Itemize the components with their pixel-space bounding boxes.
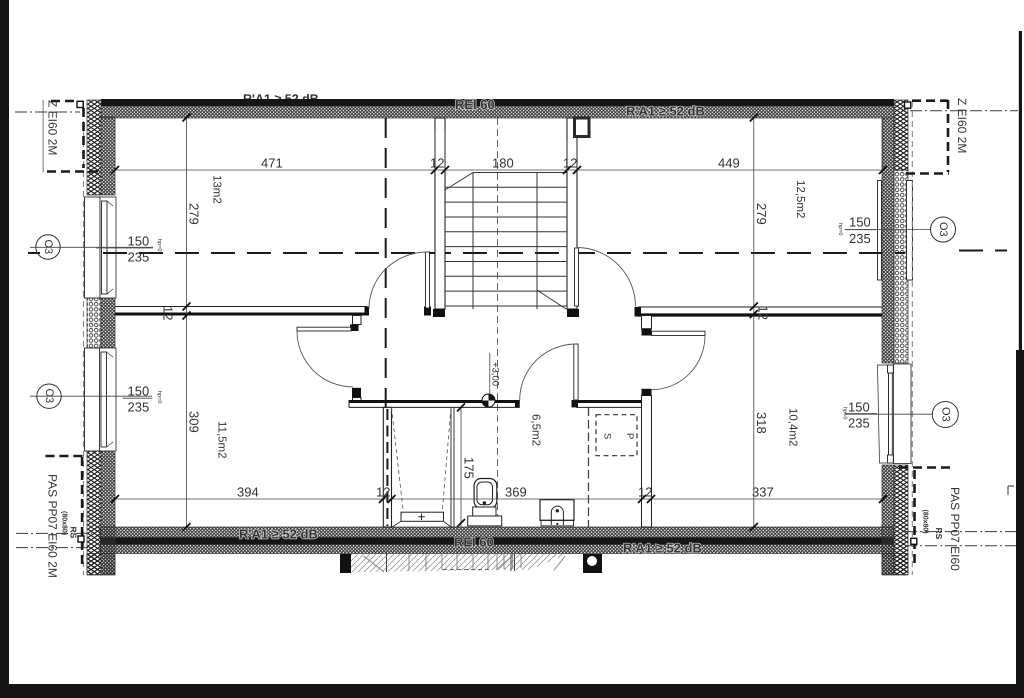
svg-text:P: P (624, 433, 635, 439)
svg-text:12: 12 (756, 306, 771, 320)
svg-text:180: 180 (492, 156, 514, 171)
svg-text:hp=0: hp=0 (156, 239, 162, 251)
svg-text:279: 279 (754, 203, 769, 225)
svg-text:hp=0: hp=0 (156, 391, 162, 403)
svg-text:O3: O3 (939, 407, 951, 422)
svg-text:235: 235 (128, 400, 150, 415)
svg-text:hp=0: hp=0 (842, 407, 848, 419)
svg-text:279: 279 (187, 203, 202, 225)
svg-text:RS: RS (934, 528, 944, 540)
svg-text:235: 235 (848, 416, 870, 431)
svg-text:Z EI60 2M: Z EI60 2M (955, 98, 969, 153)
svg-text:471: 471 (261, 156, 283, 171)
svg-text:150: 150 (849, 215, 871, 230)
svg-text:PAS PP07 EI60 2M: PAS PP07 EI60 2M (46, 474, 60, 578)
svg-text:369: 369 (505, 485, 527, 500)
svg-text:12: 12 (161, 306, 176, 320)
svg-text:REI 60: REI 60 (455, 97, 495, 112)
svg-text:R'A1 ≥ 52 dB: R'A1 ≥ 52 dB (626, 104, 705, 119)
svg-text:235: 235 (128, 250, 150, 265)
svg-text:RS: RS (69, 527, 79, 539)
svg-text:O3: O3 (43, 389, 55, 404)
svg-text:449: 449 (718, 156, 740, 171)
svg-text:PAS PP07 EI60: PAS PP07 EI60 (948, 487, 962, 571)
svg-text:12: 12 (638, 485, 652, 500)
svg-text:12: 12 (430, 156, 444, 171)
svg-text:O3: O3 (937, 222, 949, 237)
svg-text:10,4m2: 10,4m2 (787, 408, 799, 446)
svg-text:12: 12 (563, 156, 577, 171)
svg-text:+3,00: +3,00 (490, 362, 501, 386)
svg-text:(80x80): (80x80) (61, 511, 69, 535)
svg-text:11,5m2: 11,5m2 (216, 421, 228, 459)
svg-text:309: 309 (187, 411, 202, 433)
svg-text:(80x80): (80x80) (922, 510, 930, 534)
svg-text:Z EI60 2M: Z EI60 2M (46, 100, 60, 155)
svg-text:S: S (602, 433, 613, 439)
svg-text:12,5m2: 12,5m2 (794, 180, 806, 218)
svg-text:R'A1 ≥ 52 dB: R'A1 ≥ 52 dB (623, 541, 702, 556)
svg-text:337: 337 (752, 485, 774, 500)
svg-text:O3: O3 (42, 240, 54, 255)
svg-text:150: 150 (128, 234, 150, 249)
svg-text:13m2: 13m2 (211, 175, 223, 204)
svg-text:6,5m2: 6,5m2 (530, 414, 542, 446)
svg-text:12: 12 (376, 485, 390, 500)
svg-text:394: 394 (237, 485, 259, 500)
svg-text:hp=0: hp=0 (837, 223, 843, 235)
svg-text:318: 318 (754, 412, 769, 434)
svg-text:175: 175 (462, 457, 477, 479)
svg-text:R'A1 ≥ 52 dB: R'A1 ≥ 52 dB (239, 527, 318, 542)
svg-text:150: 150 (848, 400, 870, 415)
svg-text:235: 235 (849, 231, 871, 246)
svg-text:150: 150 (128, 384, 150, 399)
svg-text:REI 60: REI 60 (454, 535, 494, 550)
